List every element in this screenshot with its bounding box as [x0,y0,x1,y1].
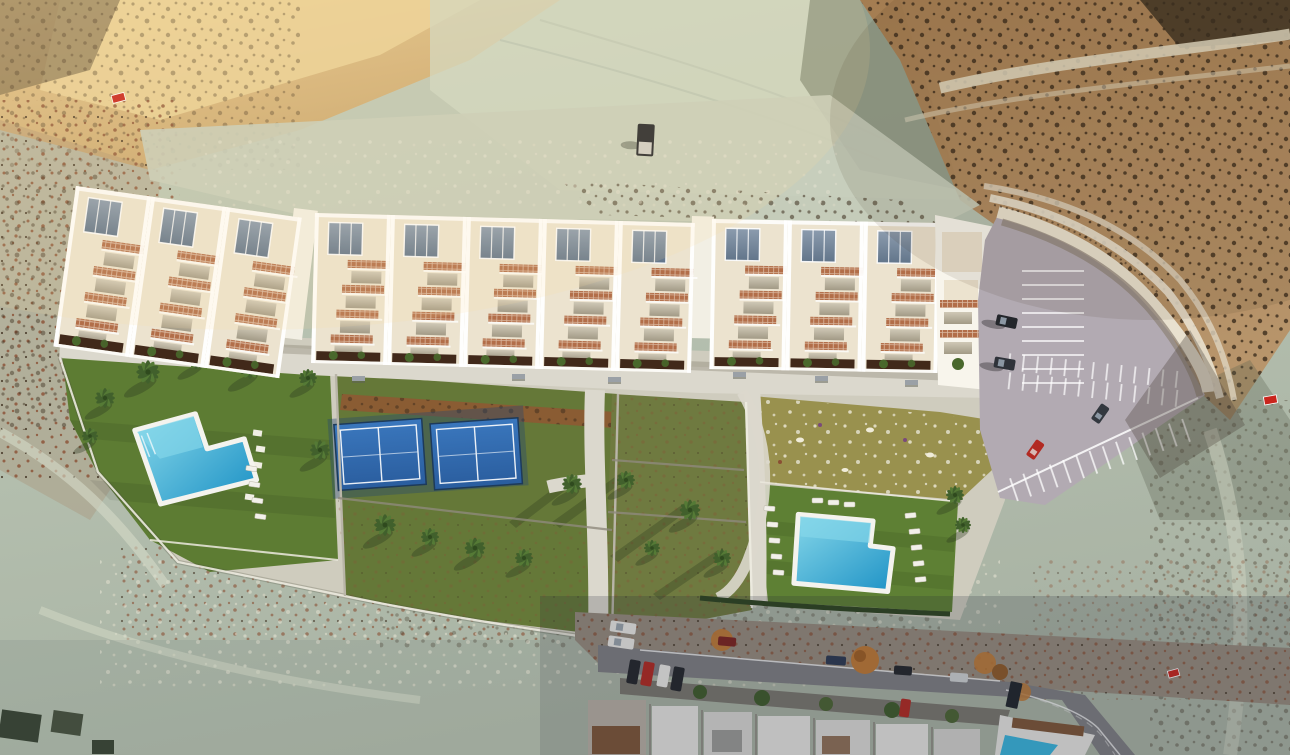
padel-courts [327,405,528,498]
townhouse-unit [785,220,868,371]
townhouse-unit [709,219,792,370]
aerial-render [0,0,1290,755]
